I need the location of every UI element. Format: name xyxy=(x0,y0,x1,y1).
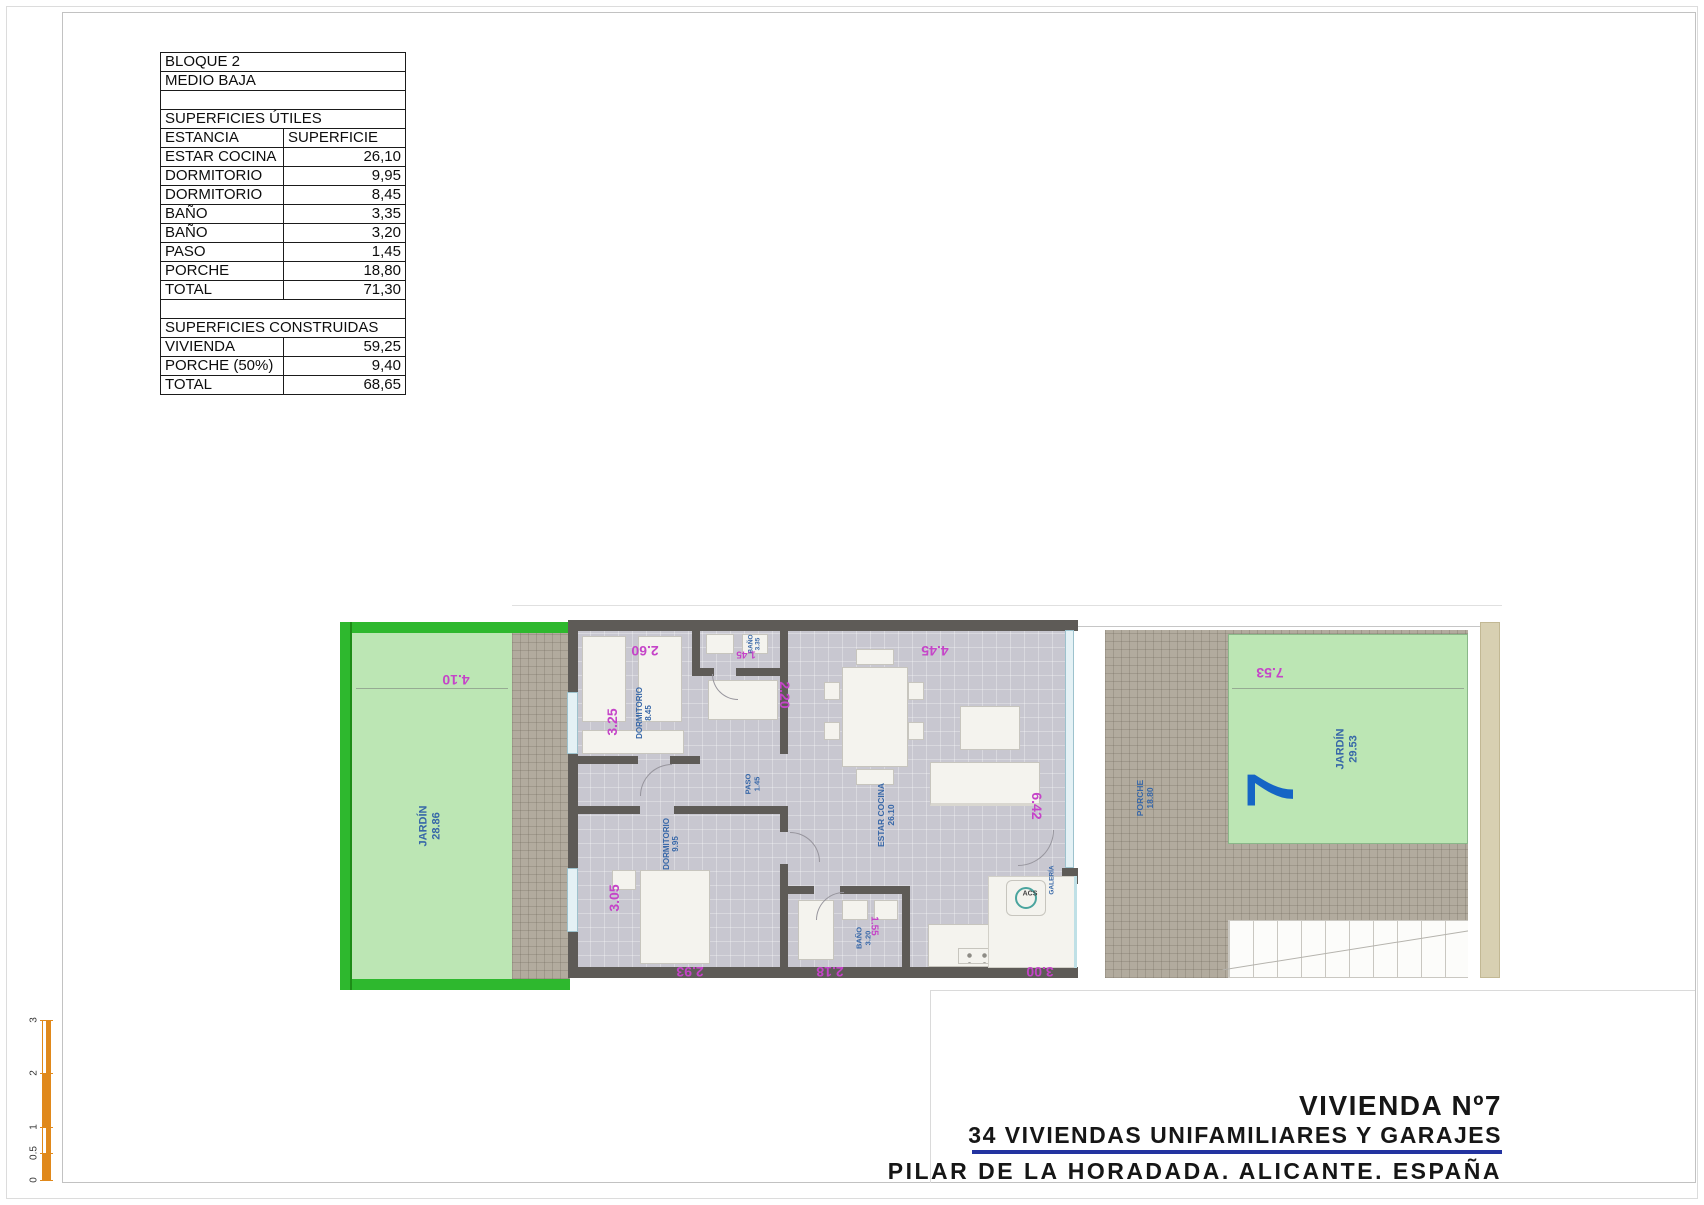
floor-title-cell: MEDIO BAJA xyxy=(161,72,406,91)
table-row: BAÑO3,35 xyxy=(161,205,406,224)
dining-chair xyxy=(824,722,840,740)
garden-left-label: JARDÍN 28.86 xyxy=(417,806,442,847)
garden-right-label: JARDÍN 29.53 xyxy=(1334,729,1359,770)
dim-jardin-left-width: 4.10 xyxy=(442,672,469,688)
garden-frame-left xyxy=(340,622,352,990)
wall-dorm1-south-b xyxy=(670,756,700,764)
dim-closet-depth: 2.20 xyxy=(777,681,793,708)
garden-frame-top xyxy=(340,622,570,633)
room-area: 28.86 xyxy=(430,806,443,847)
room-name: DORMITORIO xyxy=(662,818,671,870)
column-header-estancia: ESTANCIA xyxy=(161,129,284,148)
table-row: SUPERFICIES CONSTRUIDAS xyxy=(161,319,406,338)
title-location: PILAR DE LA HORADADA. ALICANTE. ESPAÑA xyxy=(888,1158,1502,1185)
scale-segment xyxy=(46,1021,50,1074)
dim-jardin-right-width: 7.53 xyxy=(1256,665,1283,681)
wall-dorm1-south-a xyxy=(576,756,638,764)
dining-chair xyxy=(908,722,924,740)
table-row xyxy=(161,91,406,110)
scale-label-2: 2 xyxy=(29,1070,40,1076)
dining-chair xyxy=(908,682,924,700)
dim-dorm1-width: 2.60 xyxy=(631,643,658,659)
dim-dorm1-depth: 3.25 xyxy=(604,708,620,735)
empty-cell xyxy=(161,300,406,319)
dim-dorm2-width: 2.93 xyxy=(676,964,703,980)
dim-bano2-depth: 1.55 xyxy=(869,916,880,935)
scale-label-3: 3 xyxy=(29,1017,40,1023)
total-value-cell: 68,65 xyxy=(284,376,406,395)
room-name: JARDÍN xyxy=(417,806,430,847)
boundary-wall-strip xyxy=(1480,622,1500,978)
room-name-cell: BAÑO xyxy=(161,205,284,224)
porch-label: PORCHE 18.80 xyxy=(1136,780,1156,816)
terrace-tile-strip xyxy=(512,633,570,979)
bath2-toilet xyxy=(842,900,868,920)
estar-cocina-label: ESTAR COCINA 26.10 xyxy=(877,783,897,847)
dining-chair xyxy=(824,682,840,700)
room-area: 3.35 xyxy=(755,634,762,653)
total-label-cell: TOTAL xyxy=(161,376,284,395)
room-area-cell: 9,95 xyxy=(284,167,406,186)
table-row xyxy=(161,300,406,319)
acs-label: ACS xyxy=(1023,891,1038,898)
room-name: JARDÍN xyxy=(1334,729,1347,770)
window-living-east xyxy=(1065,630,1074,868)
total-value-cell: 71,30 xyxy=(284,281,406,300)
room-area: 26.10 xyxy=(887,783,897,847)
room-name-cell: PORCHE (50%) xyxy=(161,357,284,376)
wall-dorm2-north-b xyxy=(674,806,788,814)
stairs-diagonal-line xyxy=(1223,929,1480,971)
column-header-superficie: SUPERFICIE xyxy=(284,129,406,148)
scale-tick xyxy=(40,1127,53,1128)
scale-tick xyxy=(40,1020,53,1021)
table-row: VIVIENDA59,25 xyxy=(161,338,406,357)
wardrobe-dorm1 xyxy=(582,730,684,754)
table-row: PASO1,45 xyxy=(161,243,406,262)
room-area-cell: 26,10 xyxy=(284,148,406,167)
wall-dorm2-east-b xyxy=(780,864,788,970)
tv-cabinet xyxy=(960,706,1020,750)
scale-label-0: 0 xyxy=(29,1177,40,1183)
room-area-cell: 3,35 xyxy=(284,205,406,224)
room-name-cell: DORMITORIO xyxy=(161,167,284,186)
room-area: 1.45 xyxy=(753,774,762,795)
table-row: TOTAL71,30 xyxy=(161,281,406,300)
dim-dorm2-depth: 3.05 xyxy=(606,884,622,911)
title-rule xyxy=(972,1150,1502,1154)
room-area: 29.53 xyxy=(1347,729,1360,770)
wall-dorm2-north-a xyxy=(576,806,640,814)
block-title-cell: BLOQUE 2 xyxy=(161,53,406,72)
wall-dorm2-east-a xyxy=(780,814,788,832)
room-name: DORMITORIO xyxy=(635,687,644,739)
dim-living-depth: 6.42 xyxy=(1029,792,1045,819)
scale-segment xyxy=(43,1074,50,1128)
wall-bath2-east xyxy=(902,886,910,970)
room-name-cell: DORMITORIO xyxy=(161,186,284,205)
paso-label: PASO 1.45 xyxy=(744,774,761,795)
wall-bath2-north-b xyxy=(840,886,910,894)
dining-table xyxy=(842,667,908,767)
dim-bano2-width: 2.18 xyxy=(816,964,843,980)
titleblock-divider-horizontal xyxy=(930,990,1695,991)
bed-dorm2 xyxy=(640,870,710,964)
room-area: 18.80 xyxy=(1146,780,1156,816)
empty-cell xyxy=(161,91,406,110)
room-area-cell: 18,80 xyxy=(284,262,406,281)
room-name-cell: VIVIENDA xyxy=(161,338,284,357)
scale-tick xyxy=(40,1180,53,1181)
surfaces-table: BLOQUE 2 MEDIO BAJA SUPERFICIES ÚTILES E… xyxy=(160,52,406,395)
dining-chair xyxy=(856,649,894,665)
scale-tick xyxy=(40,1153,53,1154)
table-row: TOTAL68,65 xyxy=(161,376,406,395)
room-name-cell: ESTAR COCINA xyxy=(161,148,284,167)
room-name-cell: PASO xyxy=(161,243,284,262)
cooktop xyxy=(958,948,990,964)
wall-bath1-south-a xyxy=(692,668,714,676)
bath1-sink xyxy=(706,634,734,654)
title-vivienda-number: VIVIENDA Nº7 xyxy=(1299,1090,1502,1122)
room-name-cell: BAÑO xyxy=(161,224,284,243)
room-area-cell: 3,20 xyxy=(284,224,406,243)
sofa xyxy=(930,762,1040,806)
table-row: DORMITORIO9,95 xyxy=(161,167,406,186)
table-header-row: ESTANCIA SUPERFICIE xyxy=(161,129,406,148)
stairs xyxy=(1228,920,1478,978)
dim-living-width: 4.45 xyxy=(921,643,948,659)
table-row: SUPERFICIES ÚTILES xyxy=(161,110,406,129)
room-area-cell: 8,45 xyxy=(284,186,406,205)
walkway-gap xyxy=(1468,630,1480,978)
scale-segment xyxy=(43,1154,50,1181)
titleblock-divider-vertical xyxy=(930,990,931,1183)
title-project-name: 34 VIVIENDAS UNIFAMILIARES Y GARAJES xyxy=(968,1122,1502,1149)
section-title-cell: SUPERFICIES CONSTRUIDAS xyxy=(161,319,406,338)
room-area: 9.95 xyxy=(671,818,680,870)
table-row: BAÑO3,20 xyxy=(161,224,406,243)
table-row: BLOQUE 2 xyxy=(161,53,406,72)
room-name: GALERÍA xyxy=(1048,865,1055,894)
architectural-plan-sheet: { "area_table": { "rows": [ {"label":"BL… xyxy=(0,0,1704,1205)
room-area: 8.45 xyxy=(644,687,653,739)
room-area-cell: 1,45 xyxy=(284,243,406,262)
room-area-cell: 9,40 xyxy=(284,357,406,376)
dormitorio2-label: DORMITORIO 9.95 xyxy=(662,818,680,870)
room-name-cell: PORCHE xyxy=(161,262,284,281)
floor-plan: JARDÍN 28.86 4.10 xyxy=(340,618,1500,990)
dim-kitchen-width: 3.00 xyxy=(1026,964,1053,980)
galeria-glazing xyxy=(1074,876,1077,968)
porch-top-line xyxy=(1078,626,1498,627)
wall-bath2-north-a xyxy=(788,886,814,894)
scale-bar: 3 2 1 0.5 0 xyxy=(28,1014,62,1196)
window-dormitorio-1 xyxy=(567,692,578,754)
scale-bar-body xyxy=(42,1020,51,1180)
scale-segment xyxy=(46,1128,50,1154)
garden-frame-bottom xyxy=(340,979,570,990)
table-row: PORCHE18,80 xyxy=(161,262,406,281)
table-row: ESTAR COCINA26,10 xyxy=(161,148,406,167)
garden-right-dim-line xyxy=(1232,688,1464,689)
scale-label-05: 0.5 xyxy=(29,1146,40,1160)
table-row: MEDIO BAJA xyxy=(161,72,406,91)
room-area-cell: 59,25 xyxy=(284,338,406,357)
galeria-label: GALERÍA xyxy=(1048,865,1055,894)
table-row: DORMITORIO8,45 xyxy=(161,186,406,205)
dormitorio1-label: DORMITORIO 8.45 xyxy=(635,687,653,739)
acs-appliance xyxy=(1006,880,1046,916)
unit-number: 7 xyxy=(1232,772,1308,809)
neighbour-boundary-line xyxy=(512,605,1502,606)
total-label-cell: TOTAL xyxy=(161,281,284,300)
dim-bano1-width: 1.45 xyxy=(736,649,755,660)
wall-north xyxy=(568,620,1078,631)
scale-tick xyxy=(40,1073,53,1074)
table-row: PORCHE (50%)9,40 xyxy=(161,357,406,376)
scale-label-1: 1 xyxy=(29,1124,40,1130)
garden-left-dim-line xyxy=(356,688,508,689)
window-dormitorio-2 xyxy=(567,868,578,932)
section-title-cell: SUPERFICIES ÚTILES xyxy=(161,110,406,129)
